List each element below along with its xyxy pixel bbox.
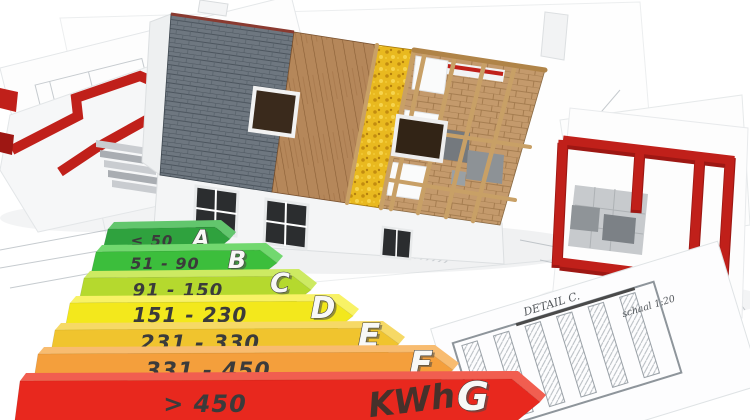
energy-bar-g: > 450 G G xyxy=(14,371,546,420)
range-label-g: > 450 xyxy=(163,390,247,418)
chimney-right xyxy=(541,12,568,60)
class-letter-d: D xyxy=(311,291,336,326)
class-letter-g: G xyxy=(457,375,489,420)
skylight-opening xyxy=(393,116,446,161)
energy-efficiency-house-illustration: DETAIL C. schaal 1:20 ≤ 50 A A 51 - 90 B… xyxy=(0,0,750,420)
skylight-window xyxy=(250,88,298,136)
class-letter-c: C xyxy=(270,268,290,299)
kitchen-island xyxy=(602,214,636,244)
kitchen-cabinet xyxy=(570,205,600,232)
scene-canvas: DETAIL C. schaal 1:20 ≤ 50 A A 51 - 90 B… xyxy=(0,0,750,420)
